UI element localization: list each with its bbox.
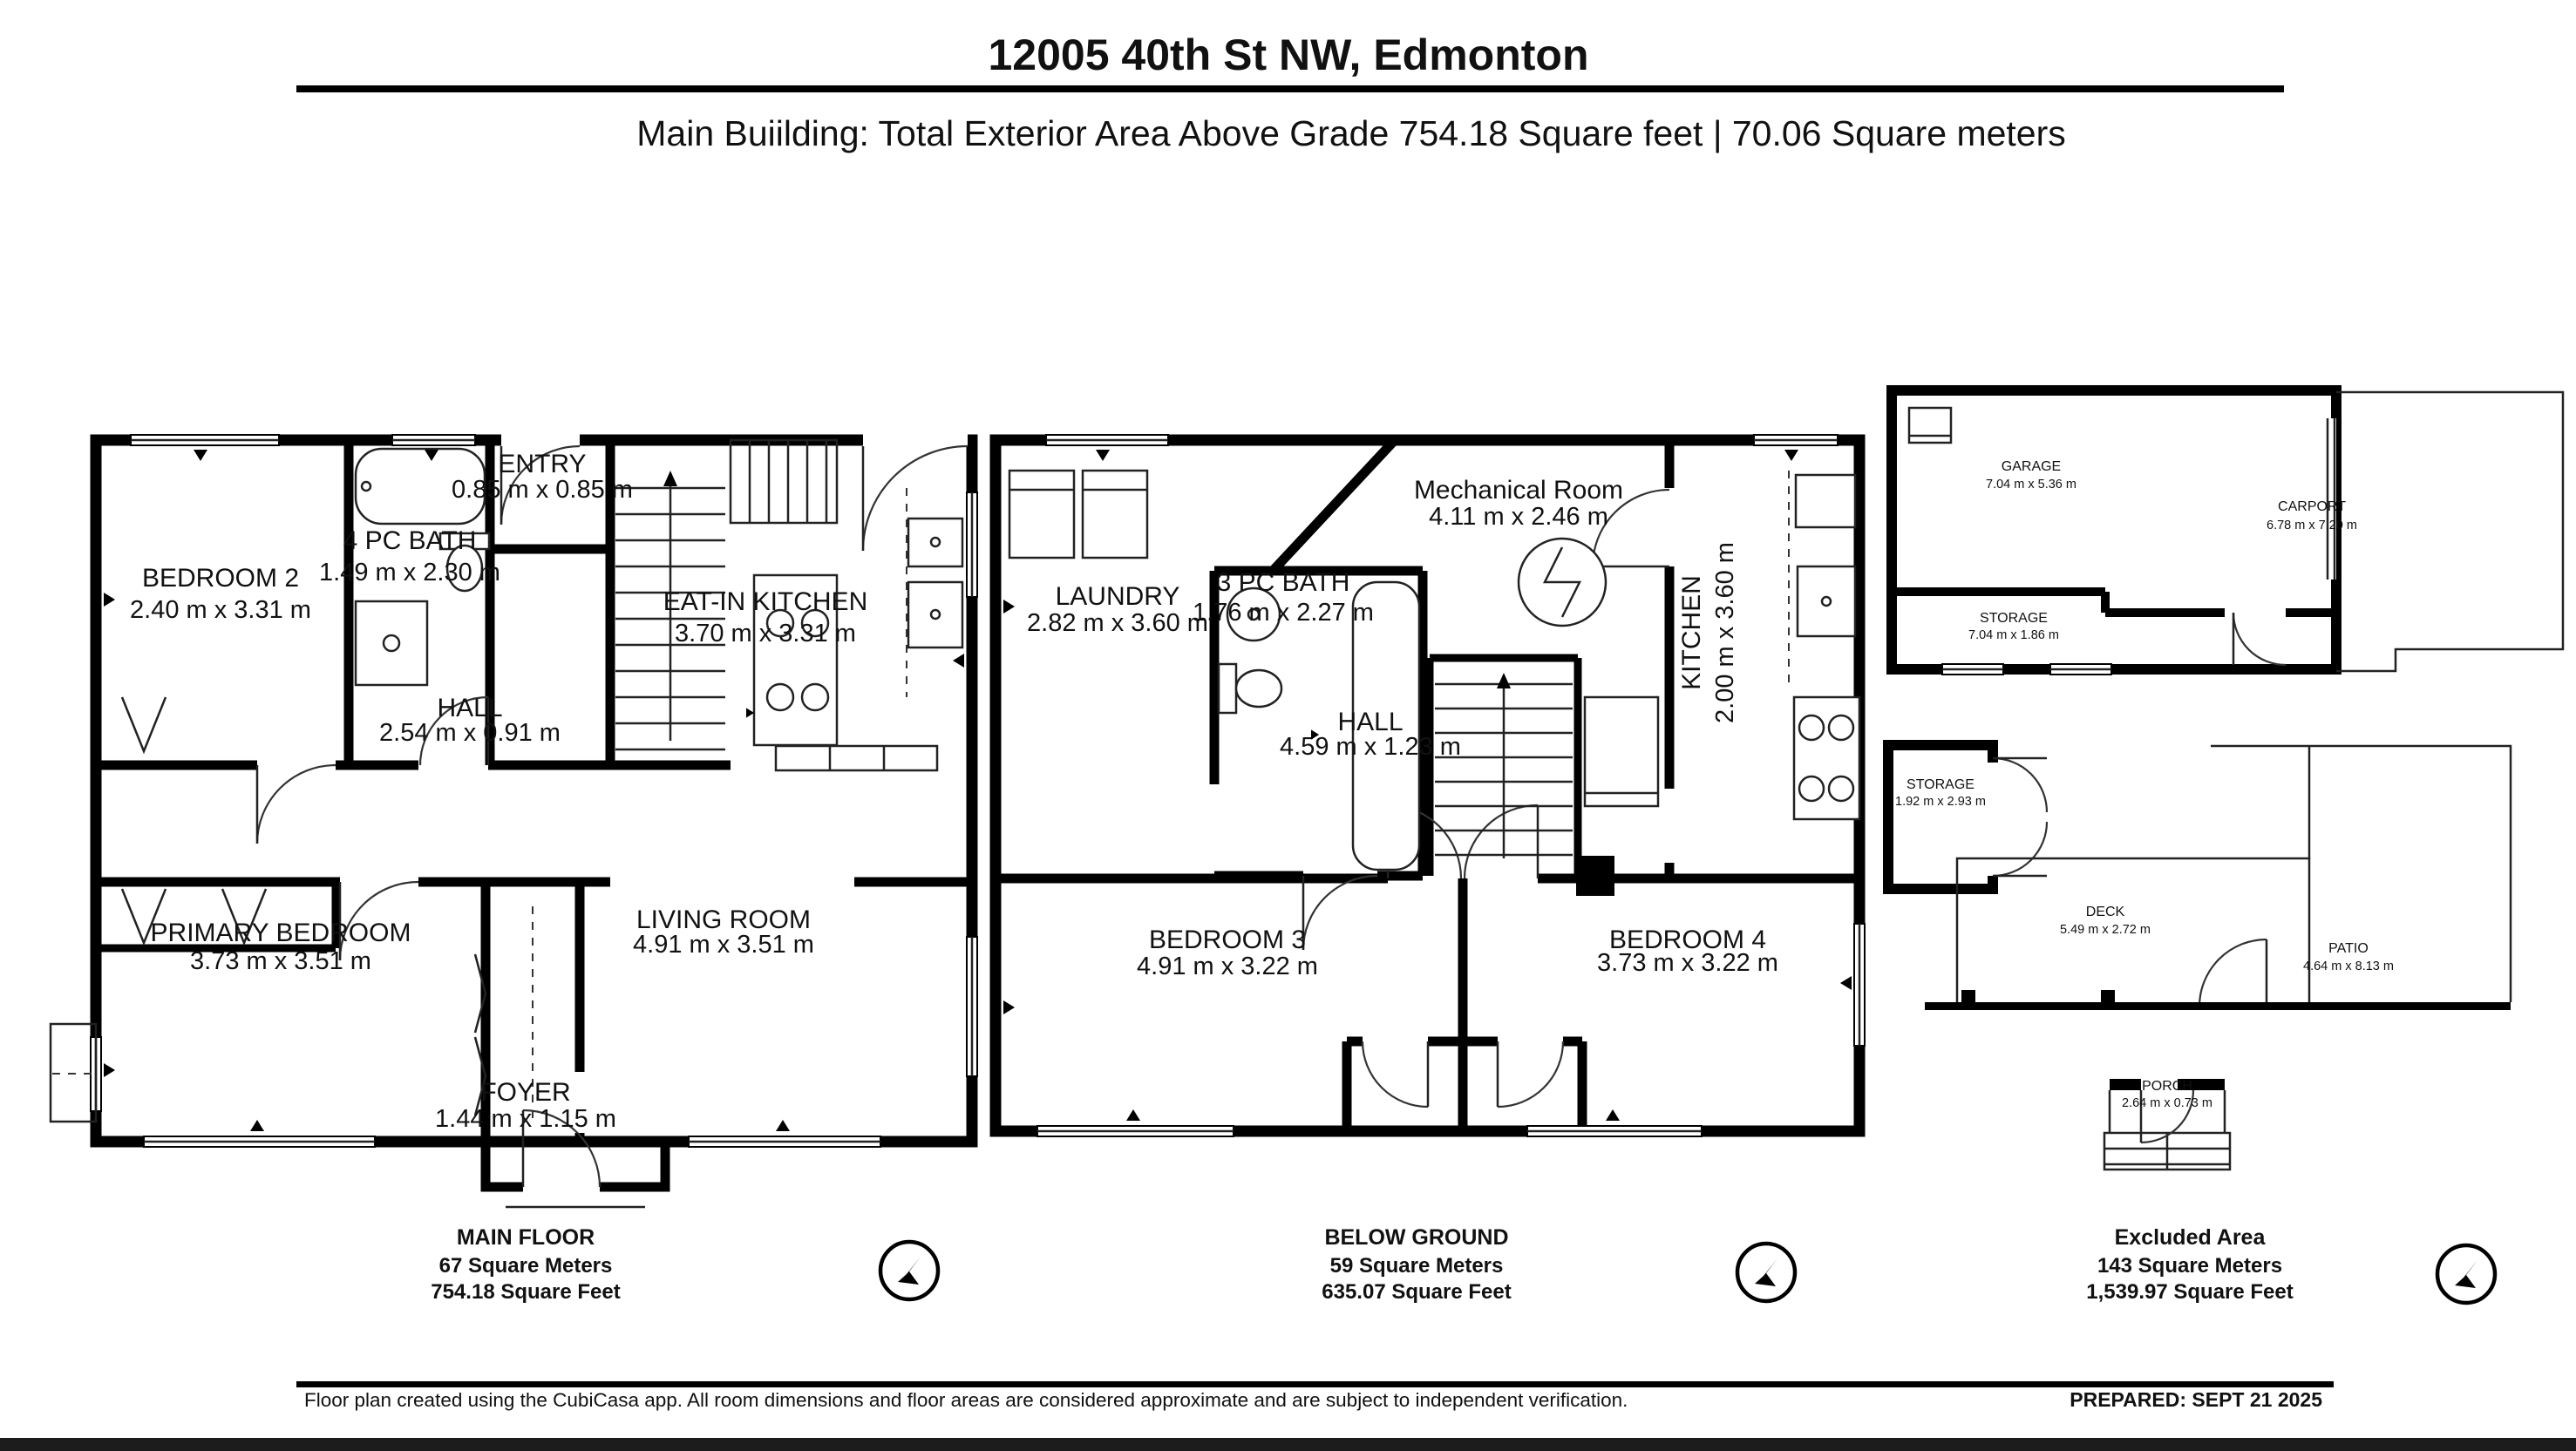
room-label: ENTRY [498, 450, 586, 478]
stairs-up [1435, 673, 1573, 858]
caption-area-m: 67 Square Meters [439, 1254, 613, 1278]
bottom-bar [0, 1438, 2576, 1451]
room-dims: 2.40 m x 3.31 m [130, 596, 311, 624]
room-dims: 4.64 m x 8.13 m [2303, 959, 2394, 973]
room-label: GARAGE [2002, 459, 2061, 474]
post [1576, 856, 1614, 896]
caption-title: BELOW GROUND [1324, 1225, 1508, 1250]
room-dims: 6.78 m x 7.20 m [2267, 519, 2357, 532]
page-title: 12005 40th St NW, Edmonton [988, 31, 1588, 79]
room-dims: 2.54 m x 0.91 m [379, 719, 561, 747]
page-subtitle: Main Buiilding: Total Exterior Area Abov… [636, 113, 2066, 153]
room-label: CARPORT [2278, 499, 2346, 514]
room-dims: 1.92 m x 2.93 m [1895, 795, 1986, 809]
caption-area-ft: 1,539.97 Square Feet [2086, 1280, 2293, 1304]
room-label: LAUNDRY [1056, 582, 1180, 611]
excluded-storage-small [1888, 745, 2047, 889]
room-label: DECK [2086, 905, 2125, 919]
compass-icon [1737, 1244, 1795, 1301]
room-label: STORAGE [1980, 611, 2048, 626]
room-dims: 7.04 m x 5.36 m [1986, 478, 2076, 492]
caption-title: Excluded Area [2115, 1225, 2267, 1250]
caption-area-m: 143 Square Meters [2097, 1254, 2282, 1278]
caption-area-ft: 754.18 Square Feet [431, 1280, 620, 1304]
room-label: BEDROOM 3 [1149, 926, 1306, 954]
below-ground-windows [1037, 435, 1865, 1136]
room-dims: 2.00 m x 3.60 m [1711, 542, 1739, 723]
footer-divider [296, 1381, 2334, 1387]
main-floor-windows [51, 435, 977, 1147]
room-label: BEDROOM 2 [142, 564, 299, 593]
carport-outline [2336, 392, 2563, 671]
room-dims: 2.64 m x 0.73 m [2122, 1096, 2212, 1110]
room-dims: 4.91 m x 3.51 m [633, 931, 814, 959]
room-label: PATIO [2328, 941, 2369, 956]
excluded-labels: GARAGE 7.04 m x 5.36 m CARPORT 6.78 m x … [1895, 459, 2394, 1110]
room-dims: 3.70 m x 3.31 m [675, 620, 856, 648]
main-floor-fixtures [122, 440, 962, 943]
caption-area-ft: 635.07 Square Feet [1322, 1280, 1511, 1304]
room-dims: 5.49 m x 2.72 m [2060, 923, 2151, 937]
room-dims: 4.59 m x 1.23 m [1280, 733, 1461, 761]
room-dims: 0.85 m x 0.85 m [452, 476, 633, 504]
compass-icon [880, 1242, 938, 1299]
floor-plan-sheet: 12005 40th St NW, Edmonton Main Buiildin… [0, 0, 2576, 1451]
room-dims: 1.44 m x 1.15 m [435, 1105, 616, 1133]
main-floor-plan: BEDROOM 2 2.40 m x 3.31 m 4 PC BATH 1.49… [51, 434, 977, 1207]
footer-disclaimer: Floor plan created using the CubiCasa ap… [304, 1389, 1628, 1411]
room-label: Mechanical Room [1414, 476, 1623, 505]
room-dims: 1.76 m x 2.27 m [1193, 599, 1374, 627]
caption-area-m: 59 Square Meters [1330, 1254, 1504, 1278]
compass-icon [2437, 1245, 2495, 1303]
title-divider [296, 85, 2284, 92]
room-label: PRIMARY BEDROOM [151, 919, 411, 947]
excluded-deck-patio [1925, 746, 2511, 1010]
room-label: FOYER [480, 1078, 570, 1107]
room-dims: 7.04 m x 1.86 m [1968, 628, 2059, 642]
room-label: PORCH [2142, 1079, 2192, 1094]
main-floor-walls [96, 440, 972, 1187]
room-dims: 1.49 m x 2.30 m [319, 559, 500, 587]
room-label: 4 PC BATH [343, 526, 477, 555]
room-dims: 4.11 m x 2.46 m [1429, 503, 1608, 531]
room-label: EAT-IN KITCHEN [663, 587, 867, 616]
excluded-area-plan: GARAGE 7.04 m x 5.36 m CARPORT 6.78 m x … [1888, 390, 2563, 1170]
stairs-up [731, 440, 837, 523]
header: 12005 40th St NW, Edmonton Main Buiildin… [296, 31, 2284, 153]
ground-line [1925, 1002, 2511, 1010]
caption-title: MAIN FLOOR [457, 1225, 595, 1250]
floor-plan-canvas: 12005 40th St NW, Edmonton Main Buiildin… [0, 0, 2576, 1451]
room-dims: 4.91 m x 3.22 m [1137, 953, 1318, 980]
footer-prepared-date: PREPARED: SEPT 21 2025 [2070, 1388, 2322, 1411]
room-dims: 2.82 m x 3.60 m [1027, 609, 1208, 637]
below-ground-plan: LAUNDRY 2.82 m x 3.60 m 3 PC BATH 1.76 m… [996, 435, 1865, 1136]
room-label: KITCHEN [1677, 575, 1706, 690]
captions: MAIN FLOOR 67 Square Meters 754.18 Squar… [431, 1225, 2495, 1304]
room-label: STORAGE [1907, 777, 1974, 792]
room-dims: 3.73 m x 3.22 m [1597, 949, 1778, 977]
footer: Floor plan created using the CubiCasa ap… [0, 1381, 2576, 1451]
furnace [1519, 539, 1606, 626]
room-label: 3 PC BATH [1217, 568, 1350, 597]
room-dims: 3.73 m x 3.51 m [190, 947, 371, 975]
